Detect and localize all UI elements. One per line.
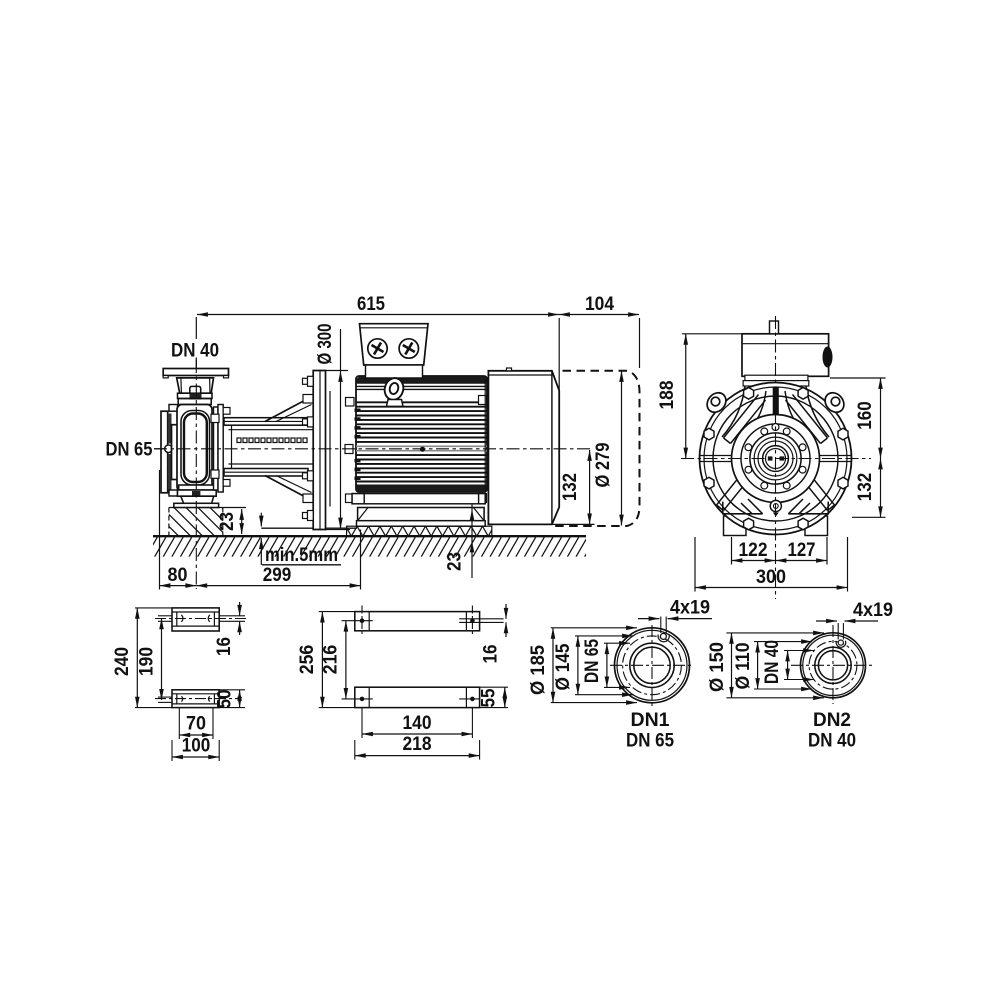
svg-text:Ø 150: Ø 150 <box>706 642 728 692</box>
svg-text:300: 300 <box>756 566 786 588</box>
svg-text:DN 40: DN 40 <box>171 340 219 362</box>
svg-text:Ø 185: Ø 185 <box>527 645 549 695</box>
svg-text:DN 65: DN 65 <box>106 439 153 461</box>
svg-text:Ø 110: Ø 110 <box>732 642 754 689</box>
svg-text:615: 615 <box>357 293 385 315</box>
svg-text:132: 132 <box>854 473 876 502</box>
svg-text:Ø 300: Ø 300 <box>314 323 336 364</box>
svg-text:50: 50 <box>214 689 236 708</box>
svg-text:218: 218 <box>403 733 432 755</box>
svg-text:min.5mm: min.5mm <box>265 544 338 566</box>
svg-text:4x19: 4x19 <box>853 599 893 621</box>
svg-text:160: 160 <box>854 401 876 430</box>
svg-text:70: 70 <box>186 713 206 735</box>
svg-text:188: 188 <box>656 380 678 409</box>
svg-text:55: 55 <box>478 688 500 707</box>
svg-text:127: 127 <box>788 539 816 561</box>
svg-text:16: 16 <box>213 637 235 656</box>
svg-text:140: 140 <box>403 712 432 734</box>
svg-text:23: 23 <box>444 552 466 571</box>
svg-text:DN 65: DN 65 <box>626 730 674 752</box>
svg-text:299: 299 <box>263 564 292 586</box>
svg-text:80: 80 <box>168 564 188 586</box>
svg-text:16: 16 <box>480 644 502 663</box>
svg-text:190: 190 <box>136 647 158 676</box>
svg-text:DN 65: DN 65 <box>581 639 603 683</box>
svg-text:256: 256 <box>296 645 318 675</box>
svg-text:DN 40: DN 40 <box>808 730 856 752</box>
svg-text:132: 132 <box>559 473 581 501</box>
svg-text:240: 240 <box>111 647 133 676</box>
svg-text:Ø 145: Ø 145 <box>552 643 574 690</box>
svg-text:104: 104 <box>585 293 614 315</box>
svg-text:DN2: DN2 <box>813 709 851 731</box>
svg-text:122: 122 <box>739 539 768 561</box>
svg-text:100: 100 <box>182 735 211 757</box>
svg-text:4x19: 4x19 <box>670 597 710 619</box>
svg-text:Ø 279: Ø 279 <box>592 442 614 487</box>
svg-text:DN1: DN1 <box>631 709 670 731</box>
svg-text:216: 216 <box>320 645 342 675</box>
svg-text:23: 23 <box>216 512 238 531</box>
svg-text:DN 40: DN 40 <box>761 640 783 684</box>
